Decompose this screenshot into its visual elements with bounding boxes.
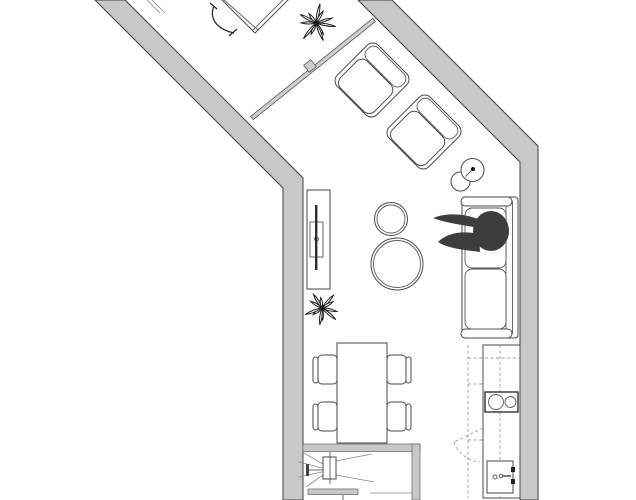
sofa-armrest-bottom <box>461 329 512 338</box>
lower-room-top-wall <box>303 444 420 452</box>
wall-bar <box>306 464 309 476</box>
floor-plan <box>0 0 636 500</box>
floor-plan-canvas <box>0 0 636 500</box>
wall-fixture <box>323 457 336 479</box>
dining-chair <box>387 402 411 431</box>
coffee-table-large <box>371 238 423 290</box>
lower-room-right-wall <box>412 444 420 500</box>
tv-console <box>307 190 330 289</box>
faucet-handle <box>511 467 515 472</box>
dining-table <box>337 343 387 443</box>
tv-screen <box>315 205 317 270</box>
sofa-armrest-top <box>461 197 512 206</box>
coffee-table-small <box>375 203 408 236</box>
sink-icon <box>487 461 515 493</box>
dining-chair <box>313 355 337 384</box>
dining-chair <box>313 402 337 431</box>
lower-room-partition-block <box>308 489 358 495</box>
dining-chair <box>387 355 411 384</box>
cooktop-icon <box>485 392 518 412</box>
faucet-handle <box>511 479 515 484</box>
